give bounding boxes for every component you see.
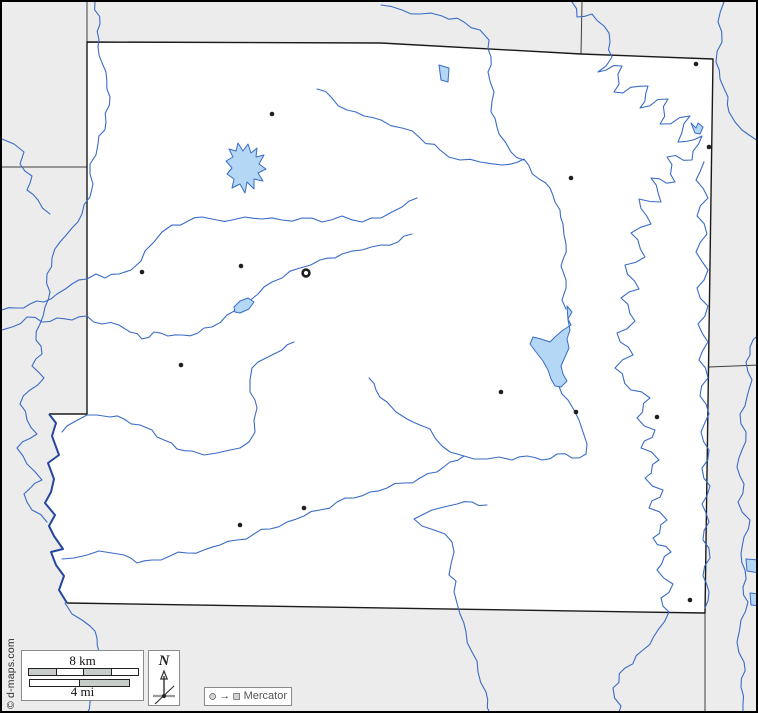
town-dot [302,506,307,511]
north-arrow-box: N [148,650,180,706]
map-frame: 8 km 4 mi N → Mercator [0,0,758,713]
scale-km-label: 8 km [22,654,143,667]
scale-segment [56,669,84,675]
lake-edge-lake-upper [746,559,758,573]
scale-segment [29,669,56,675]
town-dot [238,523,243,528]
scale-segment [83,669,111,675]
town-dot [574,410,579,415]
town-dot [270,112,275,117]
county-area [45,42,713,613]
town-dot [694,62,699,67]
projection-label: Mercator [244,691,287,702]
projection-legend-box: → Mercator [204,687,292,706]
scale-segment [111,669,139,675]
scale-bar-box: 8 km 4 mi [21,650,144,701]
km-scale-bar [28,668,139,676]
town-dot [239,264,244,269]
town-dot [688,598,693,603]
town-dot [179,363,184,368]
town-dot [569,176,574,181]
lake-small-north-lake [439,65,449,82]
lake-edge-lake-lower [750,593,758,606]
square-icon [233,691,240,702]
city-circle-icon [209,691,216,702]
compass-north-icon [150,669,178,705]
map-canvas [2,2,758,713]
arrow-right-icon: → [219,691,230,702]
scale-mi-label: 4 mi [22,685,143,698]
town-dot [655,415,660,420]
copyright-text: © d-maps.com [5,638,17,709]
county-seat-marker [303,270,310,277]
town-dot [140,270,145,275]
north-label: N [149,653,179,669]
town-dot [707,145,712,150]
town-dot [499,390,504,395]
